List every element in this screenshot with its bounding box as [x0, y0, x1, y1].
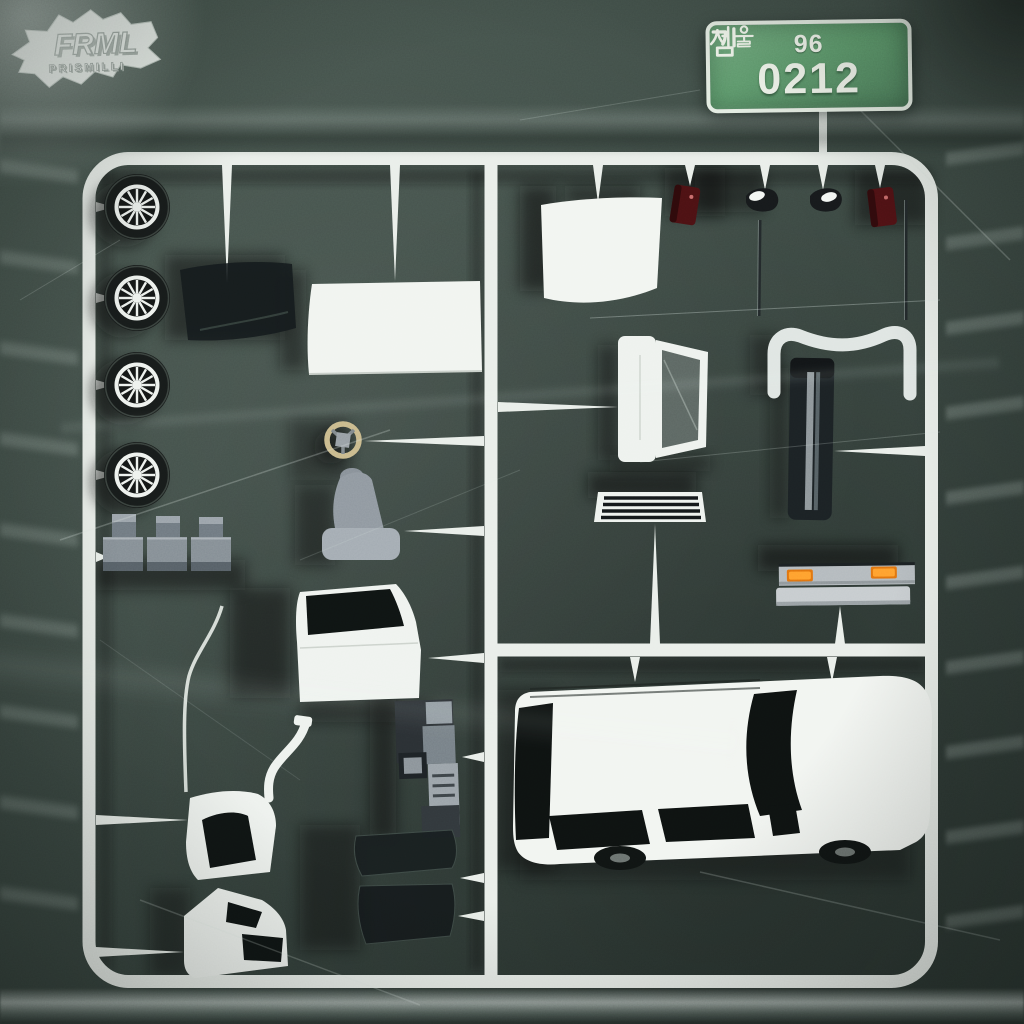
part-dashboard: [395, 699, 461, 839]
part-grille: [594, 492, 706, 522]
part-window-glass-a: [354, 830, 456, 876]
plate-region-row: 96: [794, 31, 824, 56]
part-trim-strip: [788, 358, 835, 521]
part-mirror-left: [746, 188, 778, 211]
part-quarter-panel: [184, 888, 288, 978]
part-mirror-right: [810, 188, 842, 211]
part-mud-flap: [180, 262, 296, 341]
sprue-illustration: [0, 0, 1024, 1024]
plate-region-number: 96: [794, 31, 824, 56]
plate-main-number: 0212: [757, 57, 861, 101]
part-engine-blocks: [103, 514, 231, 571]
part-tail-light-right: [867, 187, 897, 228]
part-wire-tube: [184, 606, 222, 792]
part-door: [296, 584, 421, 702]
part-roof-panel: [308, 281, 482, 374]
part-fender: [186, 715, 313, 880]
part-window-glass-b: [358, 884, 455, 944]
logo-title: FRML: [53, 26, 137, 62]
part-windshield: [541, 197, 662, 302]
license-plate: 96 0212: [705, 19, 912, 114]
plate-number-row: 0212: [757, 57, 861, 101]
part-car-body: [513, 676, 932, 870]
plate-stem: [819, 110, 827, 154]
plate-hangul-kim: [709, 25, 739, 59]
part-rear-window-frame: [618, 336, 708, 462]
album-art-scene: 96 0212 FRML FRML PRISMILLI PRISMILLI: [0, 0, 1024, 1024]
artist-logo: FRML FRML PRISMILLI PRISMILLI: [0, 0, 174, 101]
part-front-bumper: [776, 562, 916, 606]
